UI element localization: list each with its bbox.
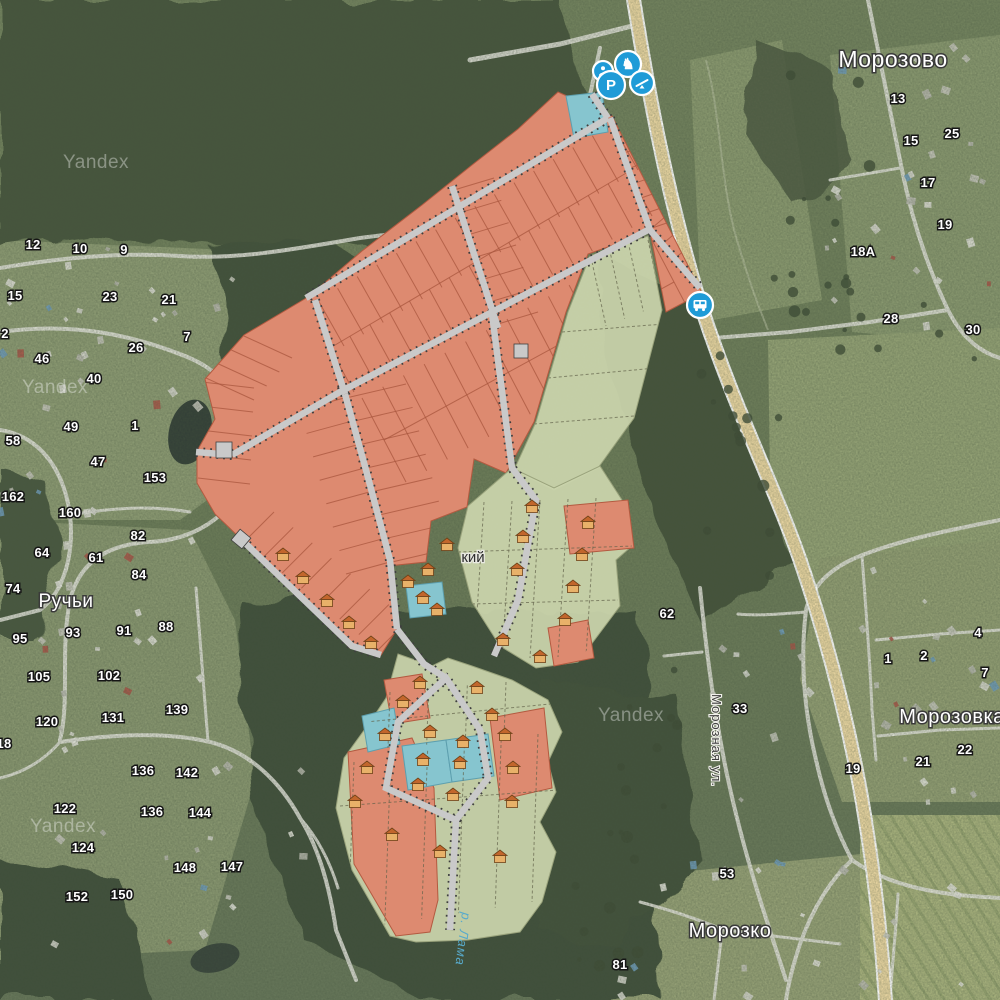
entrance-pad	[216, 442, 232, 458]
house-number: 33	[732, 701, 747, 716]
yandex-watermark: Yandex	[598, 705, 664, 726]
house-number: 124	[72, 840, 95, 855]
place-label-ruchi: Ручьи	[38, 591, 93, 612]
house-number: 18	[0, 736, 12, 751]
house-number: 2	[1, 326, 9, 341]
street-label: Морозная ул.	[709, 694, 724, 787]
house-number: 47	[90, 454, 105, 469]
house-number: 147	[221, 859, 244, 874]
house-number: 12	[25, 237, 40, 252]
house-number: 25	[944, 126, 959, 141]
house-number: 162	[2, 489, 25, 504]
yandex-watermark: Yandex	[30, 816, 96, 837]
place-label-morozko: Морозко	[689, 920, 772, 942]
house-number: 136	[132, 763, 155, 778]
house-number: 1	[884, 651, 892, 666]
bus-marker[interactable]	[687, 292, 713, 318]
house-number: 120	[36, 714, 59, 729]
house-number: 95	[12, 631, 27, 646]
plot-orange-east-2[interactable]	[548, 620, 594, 666]
house-number: 82	[130, 528, 145, 543]
house-number: 88	[158, 619, 173, 634]
plot-orange-east[interactable]	[564, 500, 634, 554]
house-number: 15	[903, 133, 918, 148]
house-number: 142	[176, 765, 199, 780]
house-number: 122	[54, 801, 77, 816]
house-number: 160	[59, 505, 82, 520]
house-number: 64	[34, 545, 50, 560]
house-number: 131	[102, 710, 125, 725]
house-number: 61	[88, 550, 103, 565]
place-label-partial-settlement: кий	[461, 549, 484, 566]
house-number: 153	[144, 470, 167, 485]
house-number: 81	[612, 957, 627, 972]
place-label-morozovo: Морозово	[838, 46, 947, 72]
house-number: 49	[63, 419, 78, 434]
house-number: 148	[174, 860, 197, 875]
house-number: 40	[86, 371, 101, 386]
house-number: 30	[965, 322, 980, 337]
house-number: 7	[981, 665, 989, 680]
house-number: 102	[98, 668, 121, 683]
playground-icon	[621, 56, 634, 73]
house-number: 19	[937, 217, 952, 232]
house-number: 23	[102, 289, 117, 304]
house-number: 58	[5, 433, 20, 448]
house-number: 9	[120, 242, 128, 257]
yandex-watermark: Yandex	[22, 377, 88, 398]
yandex-watermark: Yandex	[63, 152, 129, 173]
road-pad	[514, 344, 528, 358]
house-number: 7	[183, 329, 191, 344]
house-number: 93	[65, 625, 80, 640]
house-number: 19	[845, 761, 860, 776]
house-number: 26	[128, 340, 143, 355]
seesaw-marker[interactable]	[630, 71, 654, 95]
house-number: 4	[974, 625, 982, 640]
house-number: 62	[659, 606, 674, 621]
house-number: 144	[189, 805, 212, 820]
house-number: 2	[920, 648, 928, 663]
house-number: 21	[161, 292, 176, 307]
satellite-map[interactable]: P ♞	[0, 0, 1000, 1000]
house-number: 15	[7, 288, 22, 303]
house-number: 136	[141, 804, 164, 819]
house-number: 91	[116, 623, 131, 638]
plot-orange-south-right[interactable]	[490, 708, 552, 800]
house-number: 150	[111, 887, 134, 902]
house-number: 13	[890, 91, 905, 106]
house-number: 74	[5, 581, 21, 596]
house-number: 46	[34, 351, 49, 366]
house-number: 10	[72, 241, 87, 256]
house-number: 105	[28, 669, 51, 684]
house-number: 18А	[851, 244, 876, 259]
house-number: 28	[883, 311, 898, 326]
house-number: 84	[131, 567, 147, 582]
house-number: 139	[166, 702, 189, 717]
house-number: 22	[957, 742, 972, 757]
house-number: 17	[920, 175, 935, 190]
parking-icon	[606, 77, 616, 94]
house-number: 53	[719, 866, 734, 881]
house-number: 152	[66, 889, 89, 904]
house-number: 21	[915, 754, 930, 769]
house-number: 1	[131, 418, 139, 433]
parking-marker[interactable]	[597, 71, 625, 99]
map-viewport[interactable]: P ♞	[0, 0, 1000, 1000]
place-label-morozovka: Морозовка	[899, 706, 1000, 728]
